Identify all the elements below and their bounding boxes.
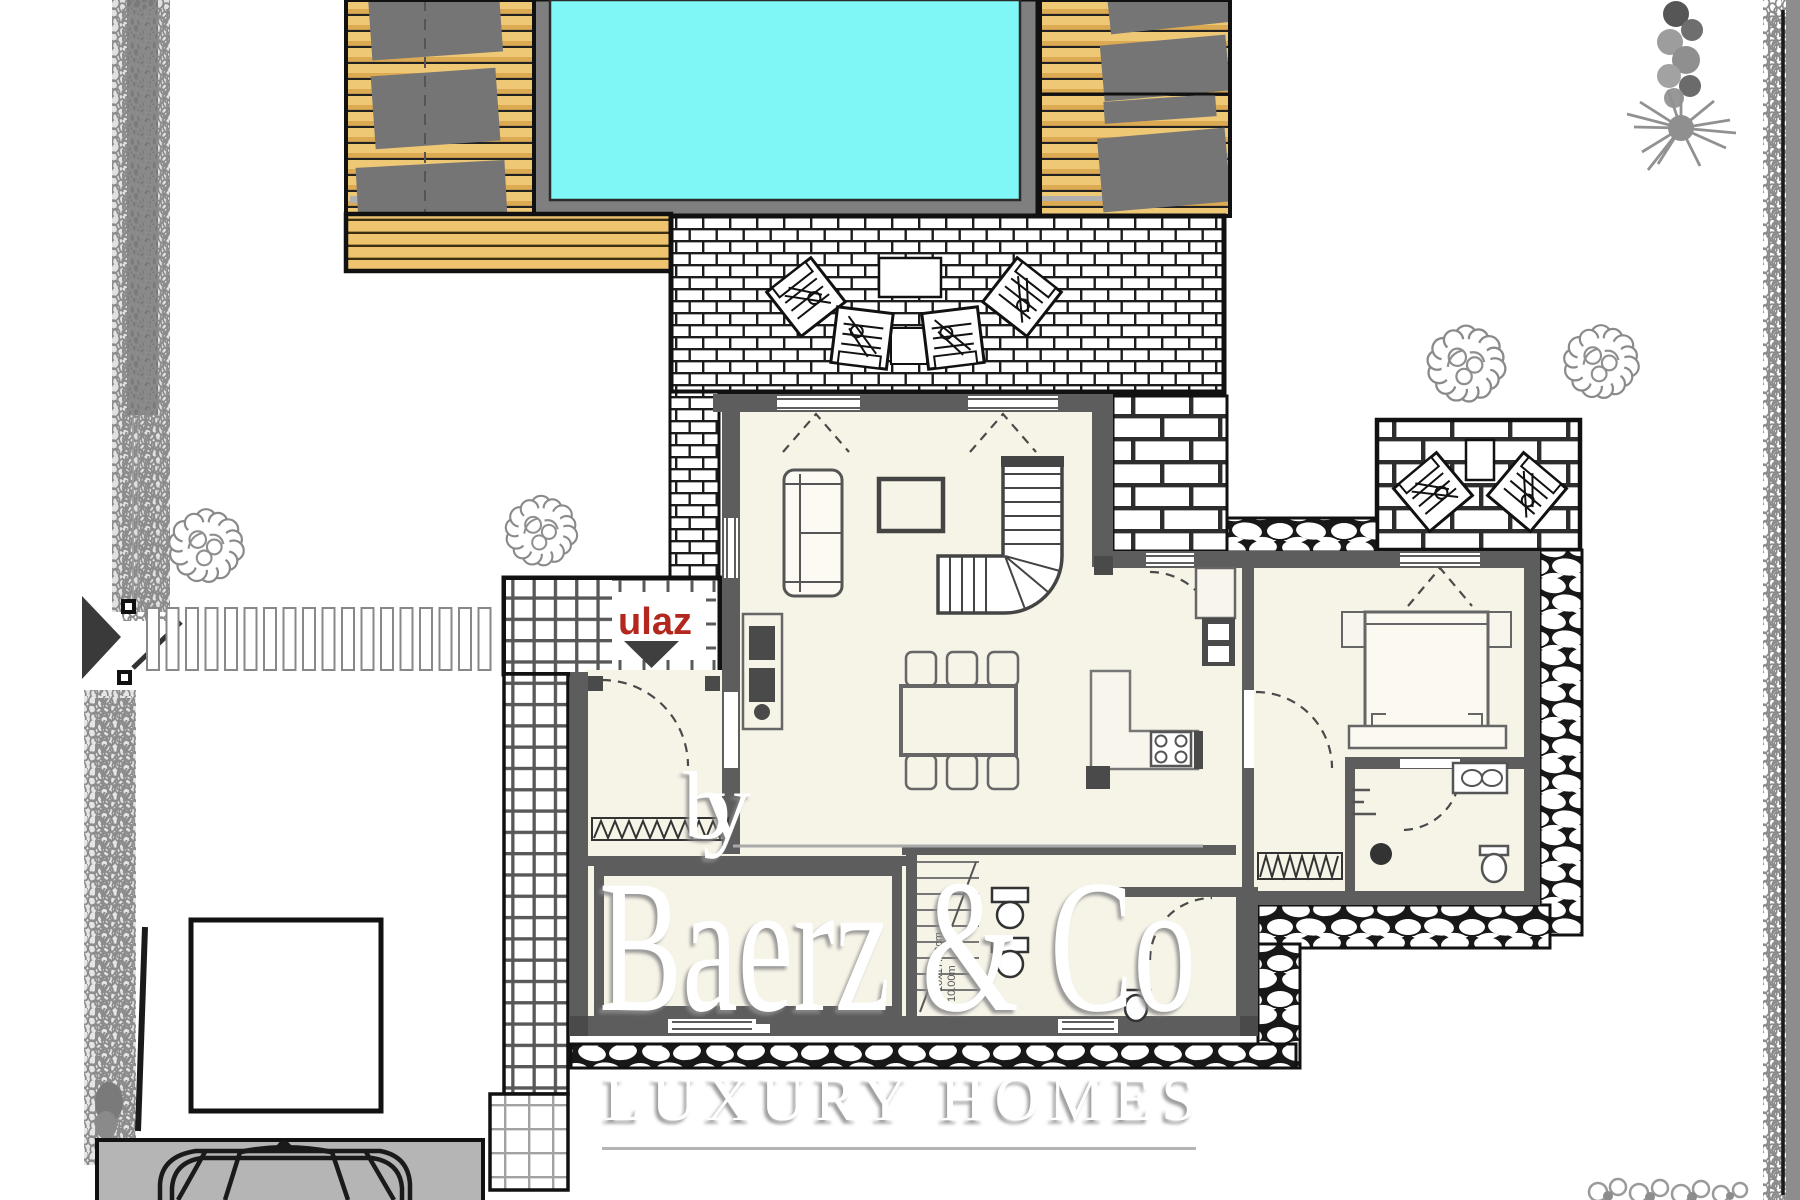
svg-text:Baerz & Co: Baerz & Co [599,842,1196,1052]
svg-text:ulaz: ulaz [618,601,692,643]
